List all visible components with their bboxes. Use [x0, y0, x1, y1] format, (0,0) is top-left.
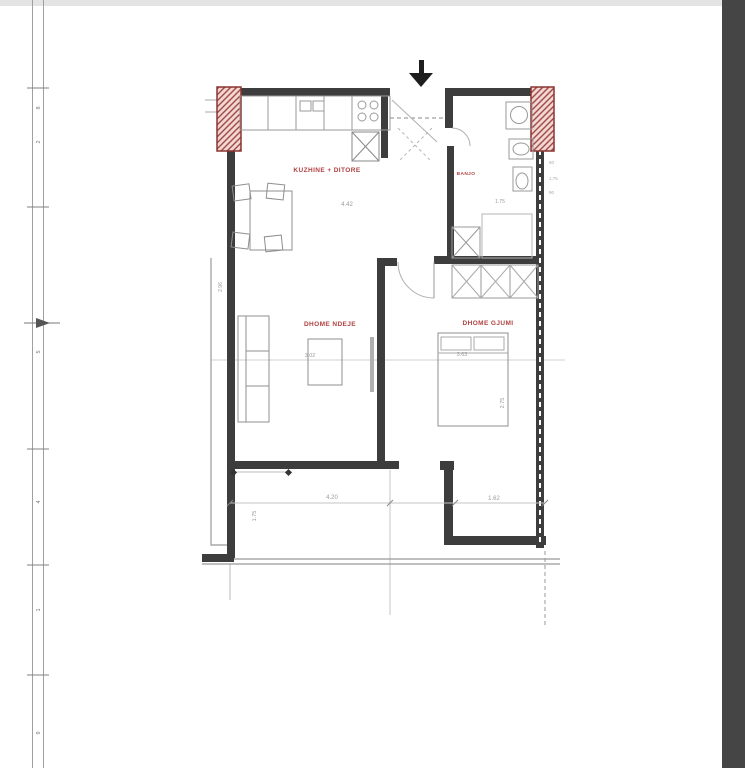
wall-left: [227, 148, 235, 558]
dim-living-width: 3.02: [305, 353, 316, 359]
ruler-label: 5: [36, 350, 42, 353]
wall-step-vertical: [444, 468, 453, 540]
bathroom-sink-bowl: [513, 143, 529, 155]
dimension-markers: [227, 469, 548, 506]
bathroom-fixtures: [452, 102, 533, 258]
wall-living-bottom: [227, 461, 399, 469]
label-bathroom: BANJO: [457, 171, 476, 177]
stove-burner: [358, 113, 366, 121]
bedroom-furniture: [438, 333, 508, 426]
entrance-arrow-icon: [409, 60, 433, 87]
floor-plan-viewer: 8 2 5 4 1 9: [0, 0, 745, 768]
wall-interior-stub: [377, 258, 397, 266]
dim-left-wall: 2.96: [218, 282, 224, 292]
dim-bottom-right: 1.62: [488, 496, 500, 502]
right-dark-strip: [722, 0, 745, 768]
dim-right: 90: [549, 190, 555, 195]
dim-bottom-left: 4.20: [326, 495, 338, 501]
tall-cabinet: [352, 132, 379, 161]
ruler-label: 4: [36, 500, 42, 503]
tv-unit: [370, 337, 374, 392]
dining-table: [250, 191, 292, 250]
stove-burner: [370, 101, 378, 109]
dim-bedroom-width: 3.63: [457, 352, 468, 358]
dim-right: 1.75: [549, 176, 558, 181]
label-kitchen-living: KUZHINE + DITORE: [293, 167, 360, 174]
coffee-table: [308, 339, 342, 385]
pillow: [474, 337, 504, 350]
dim-kitchen-width: 4.42: [341, 202, 353, 208]
sofa: [238, 316, 269, 422]
ruler-label: 8: [36, 106, 42, 109]
wall-entry-left-stub: [381, 96, 388, 158]
sink-basin: [300, 101, 311, 111]
wall-top-left: [218, 88, 390, 96]
wall-entry-right-stub: [445, 96, 453, 128]
ruler-tick-labels: 8 2 5 4 1 9: [36, 106, 42, 734]
living-room-furniture: [238, 316, 342, 422]
label-bedroom: DHOME GJUMI: [463, 320, 514, 327]
dim-bedroom-depth: 2.75: [500, 398, 506, 409]
dim-bathroom-width: 1.75: [495, 199, 505, 205]
pillow: [441, 337, 471, 350]
chair: [264, 235, 282, 252]
dim-balcony-depth: 1.75: [252, 511, 258, 522]
toilet-bowl: [516, 173, 528, 189]
wardrobe: [452, 265, 538, 298]
ruler-label: 1: [36, 608, 42, 611]
wall-interior: [377, 258, 385, 468]
stove-burner: [370, 113, 378, 121]
wall-bathroom-left: [447, 146, 454, 262]
ruler-label: 2: [36, 140, 42, 143]
sink-basin: [313, 101, 324, 111]
bed: [438, 333, 508, 426]
ruler-label: 9: [36, 731, 42, 734]
wall-bathroom-bottom: [434, 256, 544, 264]
floor-plan-canvas: 8 2 5 4 1 9: [0, 0, 745, 768]
washing-machine-drum: [511, 107, 528, 124]
chair: [266, 183, 284, 200]
kitchen-counter: [240, 96, 390, 130]
right-side-dims: 60 1.75 90: [549, 160, 558, 195]
label-living-room: DHOME NDEJE: [304, 321, 356, 328]
column-hatched-left: [217, 87, 241, 151]
wall-bottom: [444, 536, 546, 545]
dining-set: [231, 183, 292, 252]
page-top-edge: [0, 0, 722, 6]
shower-tray: [482, 214, 532, 258]
stove-burner: [358, 101, 366, 109]
column-hatched-right: [531, 87, 554, 151]
wall-bottom-left-stub: [202, 554, 234, 562]
left-dimension-ruler: [24, 0, 60, 768]
dim-right: 60: [549, 160, 555, 165]
